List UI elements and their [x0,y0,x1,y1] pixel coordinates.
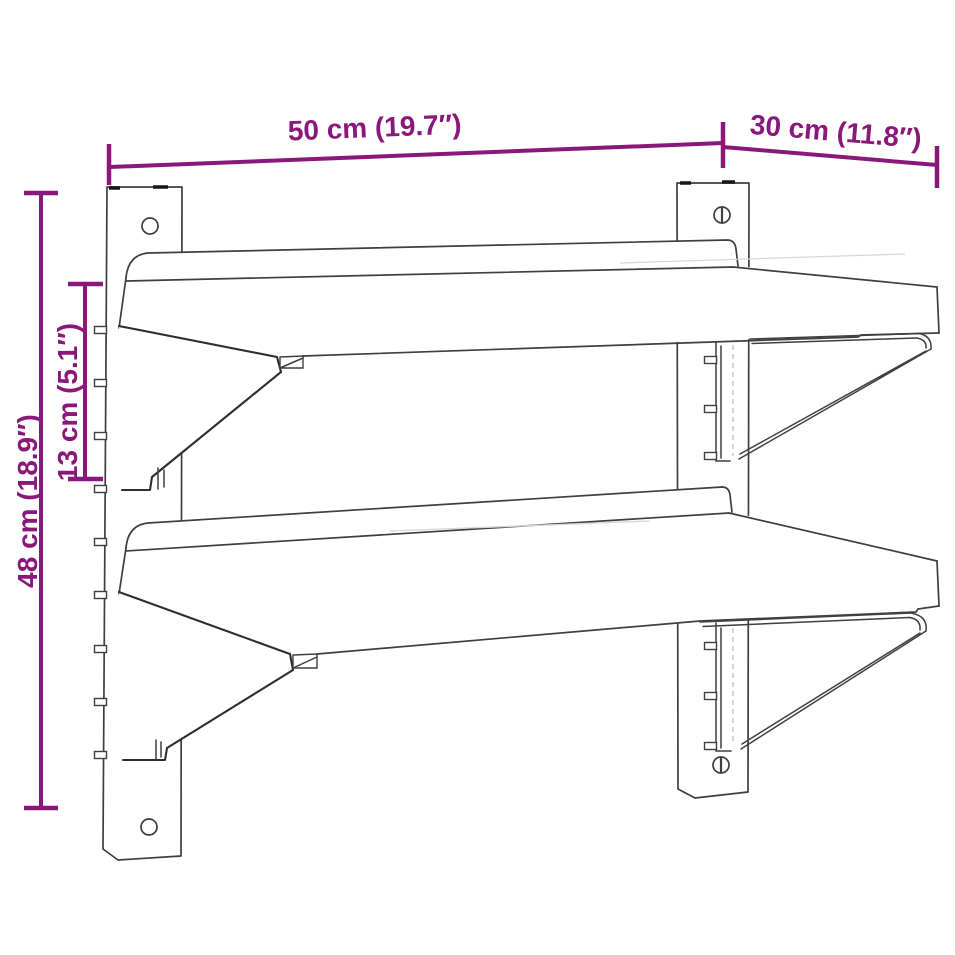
wall-shelf-drawing: 50 cm (19.7″) 30 cm (11.8″) 48 cm (18.9″… [0,0,955,955]
lower-shelf-body [119,487,939,656]
screw-hole [142,218,158,234]
bracket-tab [705,406,717,413]
upper-right-bracket-fold [917,334,931,350]
upper-right-bracket-brace [739,349,931,459]
width-dimension [109,143,723,185]
slot-tab [95,486,107,493]
bracket-tab [705,643,717,650]
lower-shelf [119,487,939,656]
screw-hole [141,819,157,835]
depth-label: 30 cm (11.8″) [749,109,923,154]
slot-tab [95,592,107,599]
bracket-tab [705,453,717,460]
slot-tab [95,327,107,334]
slot-tab [95,539,107,546]
bracket-tab [705,693,717,700]
lower-right-bracket-brace [741,631,926,749]
slot-tab [95,380,107,387]
screw-head [713,757,729,773]
slot-tab [95,752,107,759]
bracket-tab [705,743,717,750]
upper-shelf-body [119,240,939,357]
shelf-gap-label: 13 cm (5.1″) [52,323,83,481]
slot-tab [95,699,107,706]
height-label: 48 cm (18.9″) [12,414,43,588]
lower-right-bracket-fold [909,613,926,631]
product-dimension-diagram: 50 cm (19.7″) 30 cm (11.8″) 48 cm (18.9″… [0,0,955,955]
screw-head [714,207,730,223]
width-label: 50 cm (19.7″) [287,109,462,147]
slot-tab [95,433,107,440]
bracket-tab [705,357,717,364]
slot-tab [95,646,107,653]
upper-shelf [119,240,939,357]
